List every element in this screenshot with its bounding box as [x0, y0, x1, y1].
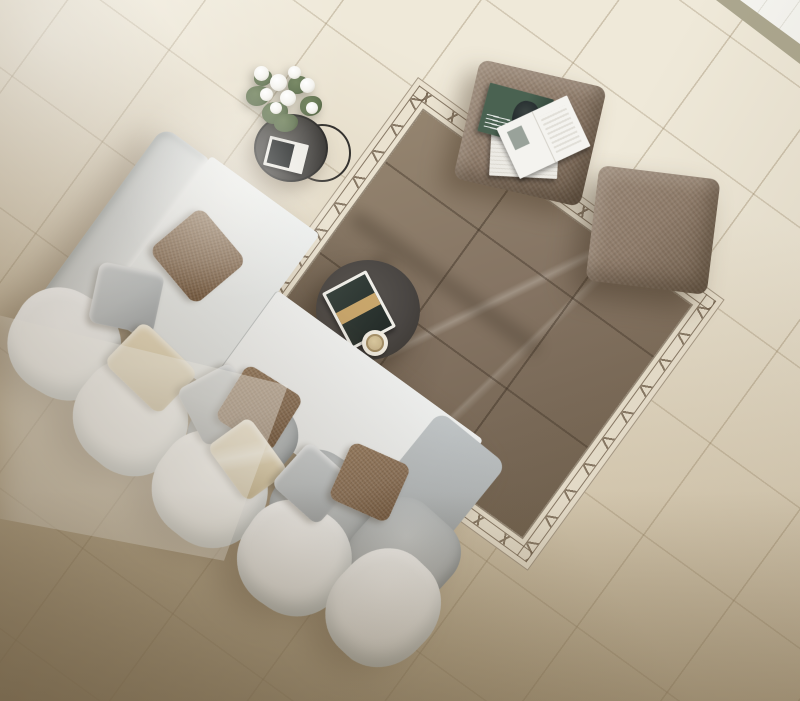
white-flower	[254, 66, 269, 81]
white-flower	[270, 74, 287, 91]
white-flower	[280, 90, 296, 106]
white-flower	[300, 78, 315, 93]
magazine-text-columns	[539, 105, 581, 153]
gray-pillow	[88, 261, 165, 335]
white-flower	[306, 102, 318, 114]
white-flower	[270, 102, 282, 114]
white-flower	[288, 66, 301, 79]
flower-bouquet	[244, 66, 330, 136]
living-room-top-view	[0, 0, 800, 701]
white-flower	[260, 88, 273, 101]
leaf	[274, 114, 298, 132]
pouf-plain	[585, 165, 720, 295]
side-table-book	[263, 136, 309, 175]
